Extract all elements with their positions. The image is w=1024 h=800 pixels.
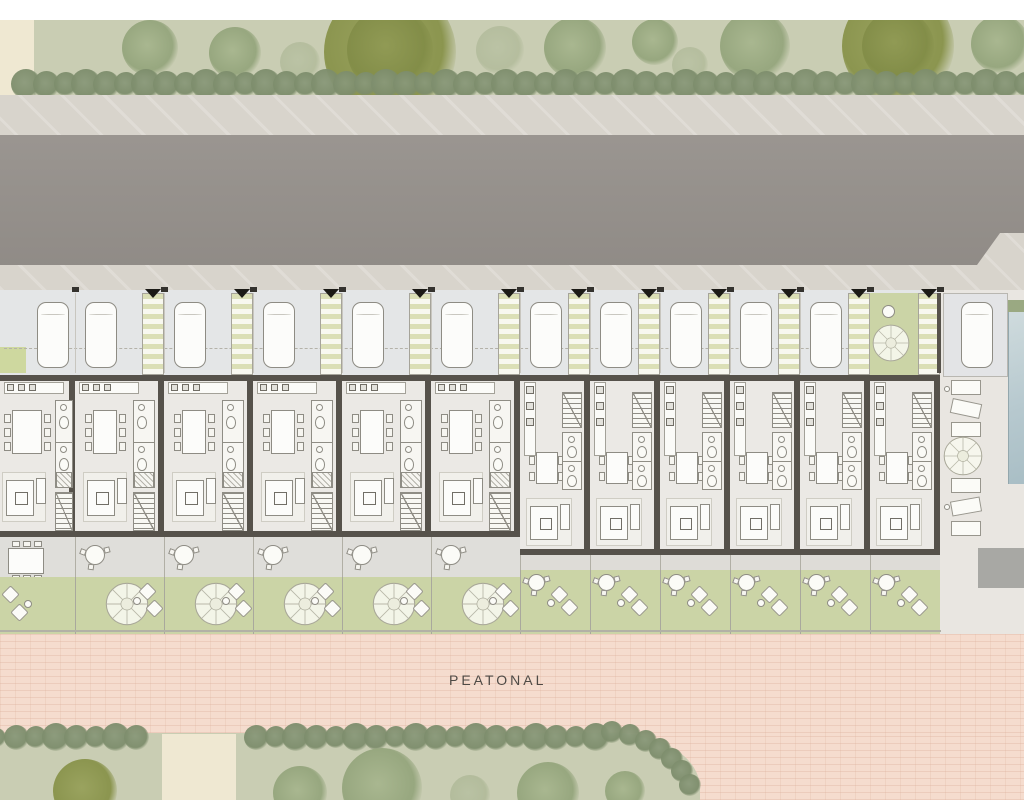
dining-chair <box>879 472 885 481</box>
terrace-chair <box>601 590 608 597</box>
greenbelt-bottom <box>0 733 1024 800</box>
deck-lounger <box>951 521 981 536</box>
stairs-run-line <box>134 493 154 530</box>
entrance-walkway <box>568 293 590 375</box>
site-plan: PEATONAL <box>0 0 1024 800</box>
dining-chair <box>809 472 815 481</box>
plot-tick <box>727 287 734 292</box>
stairs <box>842 392 862 428</box>
lounger-table <box>687 599 695 607</box>
bath-sink <box>638 436 645 443</box>
terrace-table <box>441 545 461 565</box>
entrance-walkway <box>142 293 164 375</box>
utility-pad <box>978 548 1024 588</box>
toilet <box>59 416 69 429</box>
deck-lounger <box>951 422 981 437</box>
lounger-table <box>897 599 905 607</box>
kitchen-appliance <box>736 402 744 410</box>
car <box>174 302 206 368</box>
terrace-table <box>8 548 44 574</box>
kitchen-appliance <box>7 384 14 391</box>
stairs-run-line <box>843 393 861 427</box>
dining-chair <box>263 428 270 437</box>
plot-tick <box>339 287 346 292</box>
toilet <box>226 416 236 429</box>
car <box>740 302 772 368</box>
kitchen-appliance <box>29 384 36 391</box>
deck-side-table <box>944 504 950 510</box>
dining-chair <box>698 472 703 481</box>
dining-chair <box>475 428 482 437</box>
stairs-run-line <box>633 393 651 427</box>
terrace-chair <box>671 590 678 597</box>
bath-sink <box>568 436 575 443</box>
dining-chair <box>475 442 482 451</box>
dining-table <box>816 452 838 484</box>
core-divider <box>842 461 862 462</box>
stairs-run-line <box>312 493 332 530</box>
coffee-table <box>890 518 902 530</box>
car <box>352 302 384 368</box>
dining-chair <box>297 414 304 423</box>
plot-tick <box>867 287 874 292</box>
dining-table <box>746 452 768 484</box>
coffee-table <box>15 492 28 505</box>
lounger-table <box>547 599 555 607</box>
kitchen-appliance <box>876 418 884 426</box>
dining-chair <box>669 456 675 465</box>
hedge-shrub <box>124 725 149 750</box>
garden-path <box>520 555 590 570</box>
entrance-walkway <box>778 293 800 375</box>
car <box>600 302 632 368</box>
lounger-table <box>24 600 32 608</box>
entrance-arrow-icon <box>323 289 339 298</box>
dining-chair <box>208 442 215 451</box>
kitchen-appliance <box>260 384 267 391</box>
stairs <box>632 392 652 428</box>
dining-chair <box>558 472 563 481</box>
car-windshield-line <box>445 314 469 315</box>
dining-chair <box>809 456 815 465</box>
terrace-chair <box>12 541 20 547</box>
terrace-chair <box>177 564 184 571</box>
bath-sink <box>138 404 145 411</box>
toilet <box>567 446 577 458</box>
kitchen-appliance <box>876 386 884 394</box>
stairs <box>772 392 792 428</box>
lounger-table <box>400 597 408 605</box>
stairs <box>311 492 333 531</box>
dining-chair <box>352 442 359 451</box>
kitchen-appliance <box>666 418 674 426</box>
lounger-table <box>133 597 141 605</box>
stairs-run-line <box>401 493 421 530</box>
dining-chair <box>838 472 843 481</box>
entrance-walkway <box>231 293 253 375</box>
kitchen-appliance <box>449 384 456 391</box>
coffee-table <box>540 518 552 530</box>
garden-path <box>800 555 870 570</box>
bath-sink <box>138 446 145 453</box>
car-windshield-line <box>89 314 113 315</box>
swimming-pool <box>1008 312 1024 484</box>
dining-chair <box>768 456 773 465</box>
stairs <box>133 492 155 531</box>
dining-chair <box>174 414 181 423</box>
road <box>0 135 1024 265</box>
dining-chair <box>599 456 605 465</box>
parking-divider <box>800 293 801 373</box>
entrance-arrow-icon <box>781 289 797 298</box>
armchair <box>295 478 305 504</box>
deck-hedge <box>1008 300 1024 312</box>
dining-chair <box>352 414 359 423</box>
parking-divider <box>164 293 165 373</box>
dining-chair <box>908 456 913 465</box>
stairs <box>400 492 422 531</box>
terrace-table <box>352 545 372 565</box>
dining-chair <box>441 414 448 423</box>
kitchen-appliance <box>526 386 534 394</box>
entrance-walkway <box>498 293 520 375</box>
dining-chair <box>698 456 703 465</box>
plot-tick <box>161 287 168 292</box>
dining-chair <box>879 456 885 465</box>
car-windshield-line <box>744 314 768 315</box>
toilet <box>226 458 236 471</box>
toilet <box>777 475 787 487</box>
bath-sink <box>848 436 855 443</box>
entrance-arrow-icon <box>711 289 727 298</box>
entrance-arrow-icon <box>145 289 161 298</box>
armchair <box>770 504 780 530</box>
car <box>961 302 993 368</box>
dining-chair <box>297 442 304 451</box>
terrace-table <box>85 545 105 565</box>
kitchen-appliance <box>171 384 178 391</box>
dining-chair <box>739 472 745 481</box>
entrance-arrow-icon <box>641 289 657 298</box>
core-divider <box>133 442 155 443</box>
dining-chair <box>669 472 675 481</box>
dining-chair <box>174 428 181 437</box>
dining-chair <box>386 428 393 437</box>
garden-path <box>870 555 940 570</box>
lounger-table <box>827 599 835 607</box>
armchair <box>206 478 216 504</box>
stairs-run-line <box>223 493 243 530</box>
terrace-chair <box>741 590 748 597</box>
terrace-chair <box>881 590 888 597</box>
kitchen-appliance <box>666 386 674 394</box>
dining-chair <box>263 442 270 451</box>
entrance-walkway <box>320 293 342 375</box>
bath-sink <box>568 465 575 472</box>
dining-table <box>536 452 558 484</box>
kitchen-appliance <box>806 402 814 410</box>
toilet <box>707 446 717 458</box>
bath-sink <box>60 446 67 453</box>
parking-divider <box>253 293 254 373</box>
dining-chair <box>838 456 843 465</box>
dining-chair <box>628 472 633 481</box>
dining-chair <box>908 472 913 481</box>
terrace-chair <box>34 541 42 547</box>
toilet <box>404 458 414 471</box>
dining-chair <box>441 442 448 451</box>
car-windshield-line <box>267 314 291 315</box>
dining-chair <box>44 442 51 451</box>
dining-chair <box>44 428 51 437</box>
dining-chair <box>85 442 92 451</box>
closet <box>401 472 421 488</box>
dining-chair <box>768 472 773 481</box>
coffee-table <box>452 492 465 505</box>
terrace-table <box>174 545 194 565</box>
bath-sink <box>918 465 925 472</box>
plot-tick <box>428 287 435 292</box>
core-divider <box>912 461 932 462</box>
closet <box>223 472 243 488</box>
dining-chair <box>85 428 92 437</box>
kitchen-appliance <box>104 384 111 391</box>
dining-table <box>449 410 473 454</box>
coffee-table <box>610 518 622 530</box>
bath-sink <box>918 436 925 443</box>
armchair <box>630 504 640 530</box>
kitchen-appliance <box>18 384 25 391</box>
coffee-table <box>185 492 198 505</box>
dining-chair <box>297 428 304 437</box>
dining-chair <box>739 456 745 465</box>
toilet <box>493 458 503 471</box>
lounger-table <box>311 597 319 605</box>
lounger-table <box>222 597 230 605</box>
car-windshield-line <box>41 314 65 315</box>
armchair <box>910 504 920 530</box>
kitchen-appliance <box>271 384 278 391</box>
dining-chair <box>174 442 181 451</box>
parking-divider <box>431 293 432 373</box>
car-windshield-line <box>604 314 628 315</box>
kitchen-appliance <box>876 402 884 410</box>
entrance-arrow-icon <box>501 289 517 298</box>
dining-chair <box>386 442 393 451</box>
plot-tick <box>517 287 524 292</box>
deck-lounger <box>951 478 981 493</box>
toilet <box>637 475 647 487</box>
garden-path <box>590 555 660 570</box>
car <box>530 302 562 368</box>
dining-table <box>676 452 698 484</box>
garden-path <box>730 555 800 570</box>
terrace-chair <box>88 564 95 571</box>
stairs <box>489 492 511 531</box>
car-windshield-line <box>965 314 989 315</box>
dining-table <box>271 410 295 454</box>
core-divider <box>222 442 244 443</box>
terrace-chair <box>811 590 818 597</box>
plot-tick <box>250 287 257 292</box>
dining-chair <box>558 456 563 465</box>
entrance-walkway <box>409 293 431 375</box>
terrace-chair <box>444 564 451 571</box>
bath-sink <box>848 465 855 472</box>
dining-chair <box>44 414 51 423</box>
armchair <box>700 504 710 530</box>
dining-chair <box>352 428 359 437</box>
stairs-run-line <box>563 393 581 427</box>
bath-sink <box>405 404 412 411</box>
deck-side-table <box>944 386 950 392</box>
kitchen-appliance <box>371 384 378 391</box>
stairs-run-line <box>56 493 72 530</box>
kitchen-appliance <box>596 418 604 426</box>
car <box>810 302 842 368</box>
car-windshield-line <box>814 314 838 315</box>
terrace-chair <box>23 541 31 547</box>
toilet <box>137 416 147 429</box>
parking-divider <box>730 293 731 373</box>
car <box>441 302 473 368</box>
dining-chair <box>4 442 11 451</box>
courtyard-tree <box>872 324 910 362</box>
plot-tick <box>587 287 594 292</box>
car <box>85 302 117 368</box>
dining-chair <box>441 428 448 437</box>
stairs <box>222 492 244 531</box>
toilet <box>59 458 69 471</box>
kitchen-appliance <box>806 386 814 394</box>
toilet <box>315 458 325 471</box>
coffee-table <box>96 492 109 505</box>
dining-chair <box>208 414 215 423</box>
dining-chair <box>529 456 535 465</box>
armchair <box>560 504 570 530</box>
core-divider <box>311 442 333 443</box>
kitchen-appliance <box>349 384 356 391</box>
entrance-arrow-icon <box>851 289 867 298</box>
core-divider <box>489 442 511 443</box>
planter <box>0 347 26 373</box>
toilet <box>917 446 927 458</box>
car <box>263 302 295 368</box>
dining-table <box>182 410 206 454</box>
parking-divider <box>75 293 76 373</box>
toilet <box>493 416 503 429</box>
lounger-table <box>617 599 625 607</box>
dining-chair <box>85 414 92 423</box>
terrace-table <box>263 545 283 565</box>
car-windshield-line <box>674 314 698 315</box>
tree-haze <box>476 26 524 74</box>
plot-tick <box>937 287 944 292</box>
core-divider <box>772 461 792 462</box>
kitchen-appliance <box>596 402 604 410</box>
kitchen-appliance <box>736 386 744 394</box>
dining-table <box>606 452 628 484</box>
entrance-walkway <box>708 293 730 375</box>
stairs <box>55 492 73 531</box>
tree <box>632 20 678 65</box>
entrance-arrow-icon <box>921 289 937 298</box>
kitchen-appliance <box>460 384 467 391</box>
car <box>670 302 702 368</box>
core-divider <box>400 442 422 443</box>
coffee-table <box>750 518 762 530</box>
coffee-table <box>363 492 376 505</box>
entrance-walkway <box>848 293 870 375</box>
parking-divider <box>660 293 661 373</box>
deck-lounger <box>951 380 981 395</box>
toilet <box>404 416 414 429</box>
core-divider <box>55 442 73 443</box>
stairs <box>562 392 582 428</box>
kitchen-appliance <box>193 384 200 391</box>
closet <box>490 472 510 488</box>
bath-sink <box>708 465 715 472</box>
stairs-run-line <box>703 393 721 427</box>
kitchen-appliance <box>82 384 89 391</box>
toilet <box>847 475 857 487</box>
dining-chair <box>119 414 126 423</box>
greenbelt-top <box>0 20 1024 95</box>
bath-sink <box>494 404 501 411</box>
hedge-shrub <box>679 774 701 796</box>
core-divider <box>562 461 582 462</box>
toilet <box>315 416 325 429</box>
car-windshield-line <box>178 314 202 315</box>
dining-chair <box>599 472 605 481</box>
stairs-run-line <box>490 493 510 530</box>
bath-sink <box>316 446 323 453</box>
armchair <box>36 478 46 504</box>
dining-chair <box>119 442 126 451</box>
closet <box>312 472 332 488</box>
kitchen-appliance <box>93 384 100 391</box>
park-path <box>162 734 236 800</box>
stairs <box>912 392 932 428</box>
plot-tick <box>657 287 664 292</box>
kitchen-appliance <box>596 386 604 394</box>
stairs-run-line <box>773 393 791 427</box>
lounger-table <box>489 597 497 605</box>
coffee-table <box>274 492 287 505</box>
bath-sink <box>227 446 234 453</box>
garden-fence-line <box>0 630 941 632</box>
kitchen-appliance <box>736 418 744 426</box>
closet <box>134 472 154 488</box>
dining-chair <box>475 414 482 423</box>
stairs <box>702 392 722 428</box>
bath-sink <box>60 404 67 411</box>
core-divider <box>702 461 722 462</box>
armchair <box>384 478 394 504</box>
entrance-walkway <box>638 293 660 375</box>
stairs-run-line <box>913 393 931 427</box>
entrance-arrow-icon <box>234 289 250 298</box>
toilet <box>847 446 857 458</box>
parking-divider <box>520 293 521 373</box>
coffee-table <box>680 518 692 530</box>
terrace-chair <box>531 590 538 597</box>
car-windshield-line <box>534 314 558 315</box>
kitchen-appliance <box>438 384 445 391</box>
toilet <box>637 446 647 458</box>
toilet <box>567 475 577 487</box>
bath-sink <box>494 446 501 453</box>
